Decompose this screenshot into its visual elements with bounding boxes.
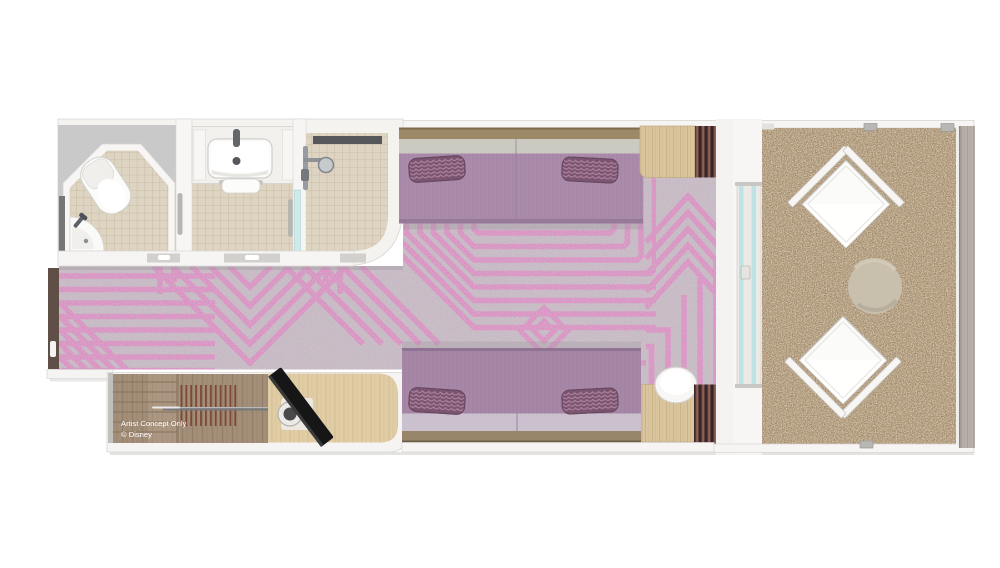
svg-text:Artist Concept Only: Artist Concept Only bbox=[121, 419, 187, 428]
svg-text:© Disney: © Disney bbox=[121, 430, 152, 439]
